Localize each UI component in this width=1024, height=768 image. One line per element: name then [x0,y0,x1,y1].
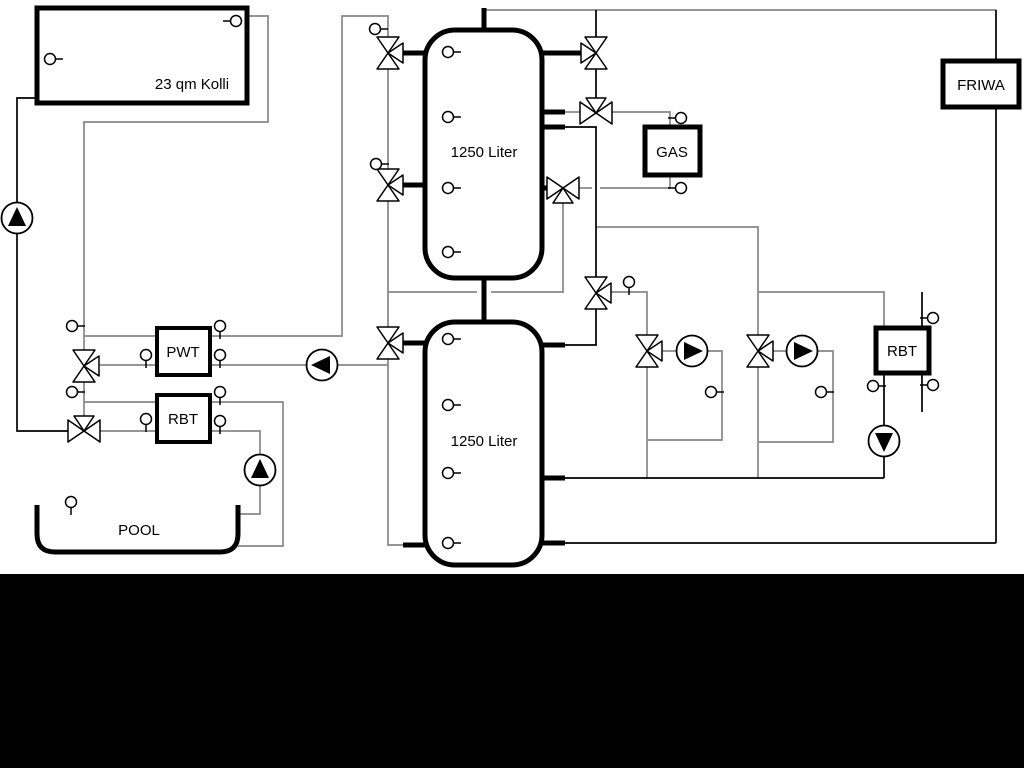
temp-sensor-icon [371,159,390,170]
valve-solar-distribution [73,350,99,382]
temp-sensor-icon [141,414,152,433]
pump-rbt-right-icon [869,426,900,457]
tank-upper-label: 1250 Liter [451,144,518,161]
temp-sensor-icon [67,387,86,398]
pipe-tank-left-riser-c [388,359,404,545]
valve-tank-upper-left-mid [377,169,403,201]
pipe-midvalve-bottom [565,309,596,345]
valve-gas-return [547,177,579,203]
pipe-solar-supply [17,98,68,431]
rbt-right-label: RBT [887,343,917,360]
pump-solar-icon [2,203,33,234]
valve-tank-top-right [581,37,607,69]
gas-label: GAS [656,144,688,161]
pump-heating-1-icon [677,336,708,367]
pump-pool-icon [245,455,276,486]
pwt-label: PWT [166,344,199,361]
temp-sensor-icon [67,321,86,332]
valve-tank-mid-right [585,277,611,309]
valve-heating-circuit-2 [747,335,773,367]
temp-sensor-icon [370,24,389,35]
pipe-hc2-to-rbt-right [758,292,884,327]
valve-heating-circuit-1 [636,335,662,367]
schematic-page: 23 qm Kolli 1250 Liter 1250 Liter PWT RB… [0,0,1024,768]
valve-gas-flow [580,98,612,124]
pipe-upper-feed-to-hc2 [596,227,758,335]
valve-tank-lower-left [377,327,403,359]
pump-heating-2-icon [787,336,818,367]
valve-pool-return [68,416,100,442]
hydraulic-schematic-canvas: 23 qm Kolli 1250 Liter 1250 Liter PWT RB… [0,0,1024,768]
pump-pwt-icon [307,350,338,381]
pipe-midvalve-to-hc1 [611,292,647,335]
temp-sensor-icon [816,387,835,398]
tank-lower-label: 1250 Liter [451,433,518,450]
friwa-label: FRIWA [957,77,1005,94]
valve-tank-upper-left-top [377,37,403,69]
rbt-left-label: RBT [168,411,198,428]
collector-label: 23 qm Kolli [155,76,229,93]
pool-label: POOL [118,522,160,539]
footer-black-band [0,574,1024,768]
